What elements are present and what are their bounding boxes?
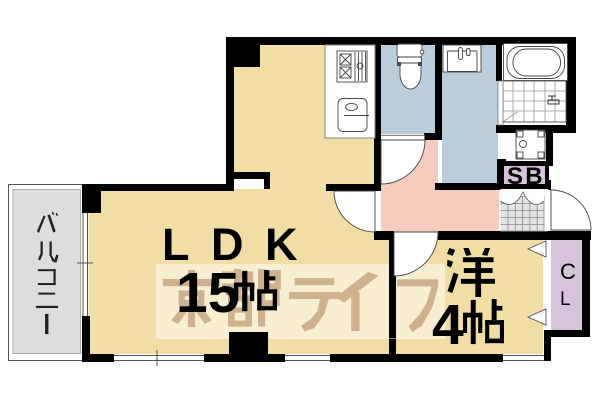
svg-text:SB: SB [507,163,545,190]
svg-text:C: C [560,259,576,284]
svg-text:L: L [560,289,571,310]
svg-text:4: 4 [432,293,464,357]
svg-text:15: 15 [176,261,239,325]
